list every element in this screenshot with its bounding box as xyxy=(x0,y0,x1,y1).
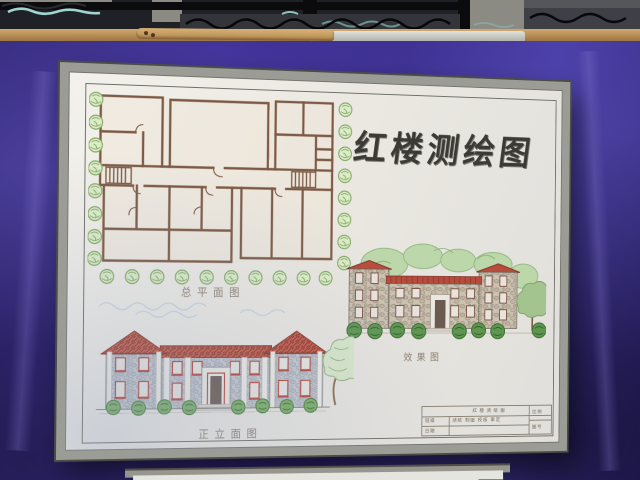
paper-shadow xyxy=(65,71,563,450)
wooden-stick xyxy=(136,28,334,41)
cloth-fold xyxy=(5,71,57,452)
drawing-board: 红楼测绘图 总平面图 xyxy=(56,62,570,460)
photo-scene: 红楼测绘图 总平面图 xyxy=(0,0,640,480)
cloth-fold xyxy=(577,51,621,472)
